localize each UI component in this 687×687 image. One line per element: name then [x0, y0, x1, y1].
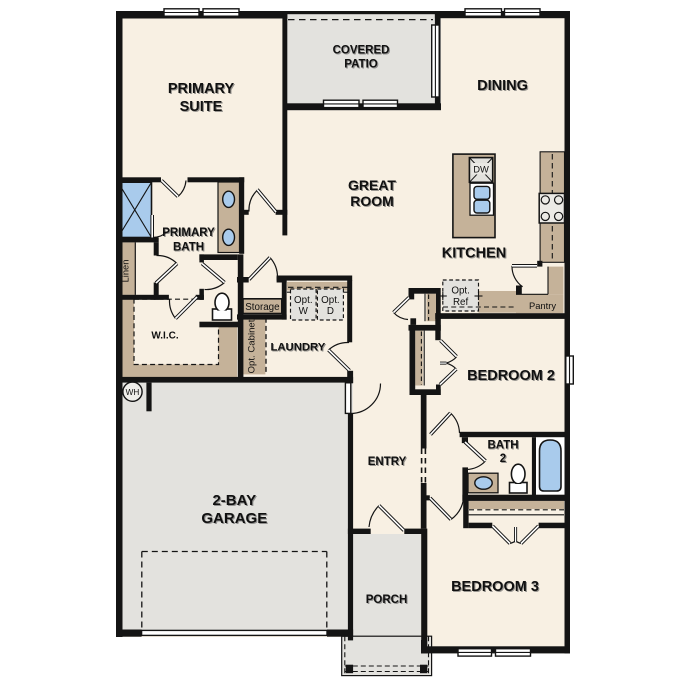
svg-text:Opt.: Opt.	[294, 295, 313, 306]
svg-text:Opt.: Opt.	[321, 295, 340, 306]
svg-text:Storage: Storage	[245, 302, 280, 313]
svg-text:BEDROOM 3: BEDROOM 3	[451, 579, 539, 595]
svg-text:LAUNDRY: LAUNDRY	[270, 341, 325, 353]
svg-text:PRIMARY: PRIMARY	[168, 81, 235, 97]
svg-text:D: D	[327, 306, 334, 317]
svg-text:PRIMARY: PRIMARY	[162, 227, 215, 239]
svg-text:Opt. Cabinet: Opt. Cabinet	[247, 319, 258, 373]
svg-text:PATIO: PATIO	[344, 59, 377, 71]
svg-text:COVERED: COVERED	[333, 45, 390, 57]
svg-text:GREAT: GREAT	[348, 177, 396, 193]
svg-text:2: 2	[500, 453, 506, 465]
svg-text:ENTRY: ENTRY	[368, 456, 407, 468]
svg-text:PORCH: PORCH	[366, 594, 408, 606]
svg-text:WH: WH	[126, 388, 140, 397]
svg-text:Opt.: Opt.	[451, 285, 470, 296]
svg-text:DINING: DINING	[477, 78, 528, 94]
svg-text:SUITE: SUITE	[180, 99, 223, 115]
svg-text:2-BAY: 2-BAY	[212, 492, 256, 509]
svg-text:Ref: Ref	[453, 297, 469, 308]
svg-text:DW: DW	[473, 163, 489, 174]
svg-text:Pantry: Pantry	[529, 300, 556, 311]
svg-text:BEDROOM 2: BEDROOM 2	[467, 368, 555, 384]
svg-text:GARAGE: GARAGE	[201, 510, 267, 527]
svg-text:W.I.C.: W.I.C.	[151, 331, 178, 342]
svg-text:BATH: BATH	[487, 440, 518, 452]
svg-text:ROOM: ROOM	[350, 193, 394, 209]
svg-text:W: W	[299, 306, 309, 317]
svg-text:KITCHEN: KITCHEN	[442, 246, 506, 262]
svg-text:BATH: BATH	[173, 242, 204, 254]
